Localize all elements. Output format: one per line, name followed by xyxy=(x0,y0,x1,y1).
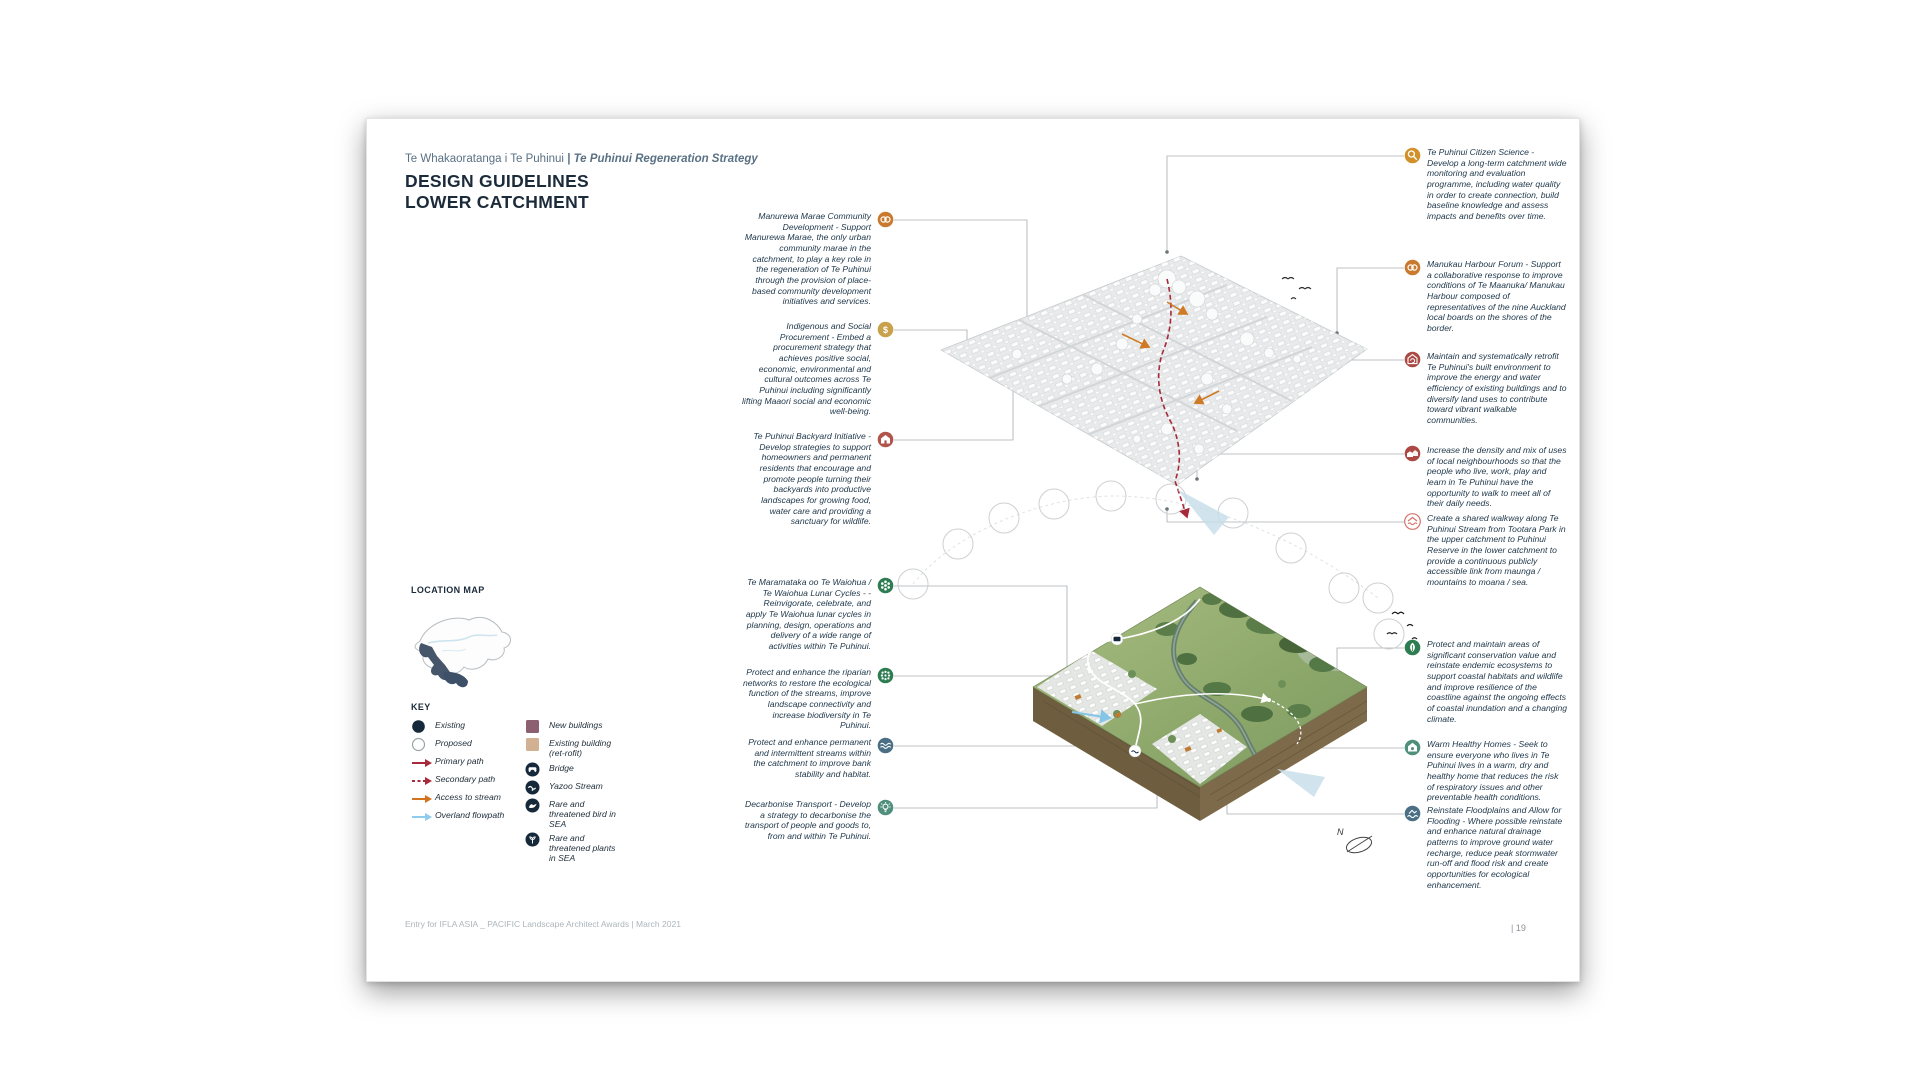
retrofit-building-icon xyxy=(1404,351,1421,368)
annotation-text: Decarbonise Transport - Develop a strate… xyxy=(741,799,871,842)
secondary-path-arrow xyxy=(411,773,435,788)
proposed-node-circle xyxy=(989,503,1019,533)
marae-community-icon xyxy=(877,211,894,228)
page-number: | 19 xyxy=(1511,923,1526,933)
annotation-item: Maintain and systematically retrofit Te … xyxy=(1404,351,1567,426)
annotation-item: Decarbonise Transport - Develop a strate… xyxy=(741,799,894,842)
proposed-node-circle xyxy=(1374,619,1404,649)
key-item: Proposed xyxy=(411,737,504,752)
annotation-text: Protect and maintain areas of significan… xyxy=(1427,639,1567,724)
birds-upper xyxy=(1282,278,1311,300)
key-column-right: New buildings Existing building (ret-rof… xyxy=(525,719,621,867)
annotation-text: Warm Healthy Homes - Seek to ensure ever… xyxy=(1427,739,1567,803)
key-item-label: Bridge xyxy=(549,762,621,774)
annotation-item: Te Puhinui Citizen Science - Develop a l… xyxy=(1404,147,1567,222)
coastal-highlight xyxy=(444,672,468,687)
annotation-text: Manukau Harbour Forum - Support a collab… xyxy=(1427,259,1567,334)
key-item: Rare and threatened plants in SEA xyxy=(525,832,621,864)
key-column-left: Existing Proposed Primary path Secondary… xyxy=(411,719,504,827)
key-item: Primary path xyxy=(411,755,504,770)
page-title-line1: DESIGN GUIDELINES xyxy=(405,171,589,192)
figure-illustration: N xyxy=(867,129,1437,899)
citizen-science-magnifier-icon xyxy=(1404,147,1421,164)
bridge-badge xyxy=(525,762,549,777)
key-item: Existing xyxy=(411,719,504,734)
upper-catchment-map xyxy=(941,256,1367,535)
annotation-text: Reinstate Floodplains and Allow for Floo… xyxy=(1427,805,1567,890)
north-label: N xyxy=(1337,827,1344,837)
annotation-text: Indigenous and Social Procurement - Embe… xyxy=(741,321,871,417)
key-item-label: Rare and threatened plants in SEA xyxy=(549,832,621,864)
proposed-node-circle xyxy=(1329,573,1359,603)
primary-path-arrow xyxy=(411,755,435,770)
overland-flowpath-arrow xyxy=(411,809,435,824)
annotation-item: Create a shared walkway along Te Puhinui… xyxy=(1404,513,1567,588)
annotation-text: Protect and enhance the riparian network… xyxy=(741,667,871,731)
page-title-line2: LOWER CATCHMENT xyxy=(405,192,589,213)
proposed-dot xyxy=(411,737,435,752)
access-to-stream-arrow xyxy=(411,791,435,806)
key-item-label: Overland flowpath xyxy=(435,809,504,821)
key-item-label: Access to stream xyxy=(435,791,501,803)
kicker-strategy-english: | Te Puhinui Regeneration Strategy xyxy=(567,153,758,165)
annotation-item: Reinstate Floodplains and Allow for Floo… xyxy=(1404,805,1567,890)
density-housing-icon xyxy=(1404,445,1421,462)
document-page: Te Whakaoratanga i Te Puhinui | Te Puhin… xyxy=(366,118,1580,982)
rare-bird-badge xyxy=(525,798,549,813)
riparian-networks-icon xyxy=(877,667,894,684)
existing-dot xyxy=(411,719,435,734)
annotation-item: Manukau Harbour Forum - Support a collab… xyxy=(1404,259,1567,334)
annotation-text: Increase the density and mix of uses of … xyxy=(1427,445,1567,509)
lunar-cycles-flower-icon xyxy=(877,577,894,594)
annotation-item: Manurewa Marae Community Development - S… xyxy=(741,211,894,307)
key-label: KEY xyxy=(411,702,431,712)
annotation-text: Te Puhinui Backyard Initiative - Develop… xyxy=(741,431,871,527)
annotation-item: Protect and enhance permanent and interm… xyxy=(741,737,894,780)
proposed-node-circle xyxy=(1276,533,1306,563)
conservation-leaf-icon xyxy=(1404,639,1421,656)
page-title: DESIGN GUIDELINES LOWER CATCHMENT xyxy=(405,171,589,213)
key-item: Secondary path xyxy=(411,773,504,788)
indigenous-procurement-dollar-icon: $ xyxy=(877,321,894,338)
annotation-item: Protect and maintain areas of significan… xyxy=(1404,639,1567,724)
harbour-forum-icon xyxy=(1404,259,1421,276)
svg-text:$: $ xyxy=(883,325,888,335)
key-item: Yazoo Stream xyxy=(525,780,621,795)
backyard-house-icon xyxy=(877,431,894,448)
key-item-label: Yazoo Stream xyxy=(549,780,621,792)
kicker-strategy-maori: Te Whakaoratanga i Te Puhinui xyxy=(405,153,567,165)
annotation-item: Te Puhinui Backyard Initiative - Develop… xyxy=(741,431,894,527)
annotation-text: Create a shared walkway along Te Puhinui… xyxy=(1427,513,1567,588)
key-item-label: Existing building (ret-rofit) xyxy=(549,737,621,759)
key-item-label: New buildings xyxy=(549,719,621,731)
annotation-item: Indigenous and Social Procurement - Embe… xyxy=(741,321,894,417)
key-item: Bridge xyxy=(525,762,621,777)
footer-text: Entry for IFLA ASIA _ PACIFIC Landscape … xyxy=(405,919,681,929)
key-item: New buildings xyxy=(525,719,621,734)
key-item-label: Rare and threatened bird in SEA xyxy=(549,798,621,830)
location-map-graphic xyxy=(395,601,525,701)
key-item-label: Existing xyxy=(435,719,465,731)
streams-wave-icon xyxy=(877,737,894,754)
lower-catchment-map: N xyxy=(1033,587,1417,856)
key-item-label: Primary path xyxy=(435,755,484,767)
annotation-item: Increase the density and mix of uses of … xyxy=(1404,445,1567,509)
catchment-outline xyxy=(415,617,510,674)
annotation-text: Te Puhinui Citizen Science - Develop a l… xyxy=(1427,147,1567,222)
floodplains-icon xyxy=(1404,805,1421,822)
proposed-node-circle xyxy=(1363,583,1393,613)
new-buildings-swatch xyxy=(525,719,549,734)
yazoo-stream-badge xyxy=(525,780,549,795)
key-item-label: Proposed xyxy=(435,737,472,749)
annotation-item: Protect and enhance the riparian network… xyxy=(741,667,894,731)
annotation-text: Maintain and systematically retrofit Te … xyxy=(1427,351,1567,426)
annotation-text: Protect and enhance permanent and interm… xyxy=(741,737,871,780)
flow-swoosh-lower xyxy=(1277,769,1325,797)
shared-walkway-icon xyxy=(1404,513,1421,530)
key-item: Overland flowpath xyxy=(411,809,504,824)
location-map-label: LOCATION MAP xyxy=(411,585,485,595)
key-item: Access to stream xyxy=(411,791,504,806)
annotation-item: Warm Healthy Homes - Seek to ensure ever… xyxy=(1404,739,1567,803)
key-item-label: Secondary path xyxy=(435,773,495,785)
key-item: Rare and threatened bird in SEA xyxy=(525,798,621,830)
north-arrow: N xyxy=(1337,827,1374,856)
annotation-text: Te Maramataka oo Te Waiohua / Te Waiohua… xyxy=(741,577,871,652)
rare-plants-badge xyxy=(525,832,549,847)
decarbonise-transport-bulb-icon xyxy=(877,799,894,816)
healthy-homes-icon xyxy=(1404,739,1421,756)
annotation-item: Te Maramataka oo Te Waiohua / Te Waiohua… xyxy=(741,577,894,652)
page-kicker: Te Whakaoratanga i Te Puhinui | Te Puhin… xyxy=(405,153,758,165)
key-item: Existing building (ret-rofit) xyxy=(525,737,621,759)
annotation-text: Manurewa Marae Community Development - S… xyxy=(741,211,871,307)
existing-building-retrofit-swatch xyxy=(525,737,549,752)
